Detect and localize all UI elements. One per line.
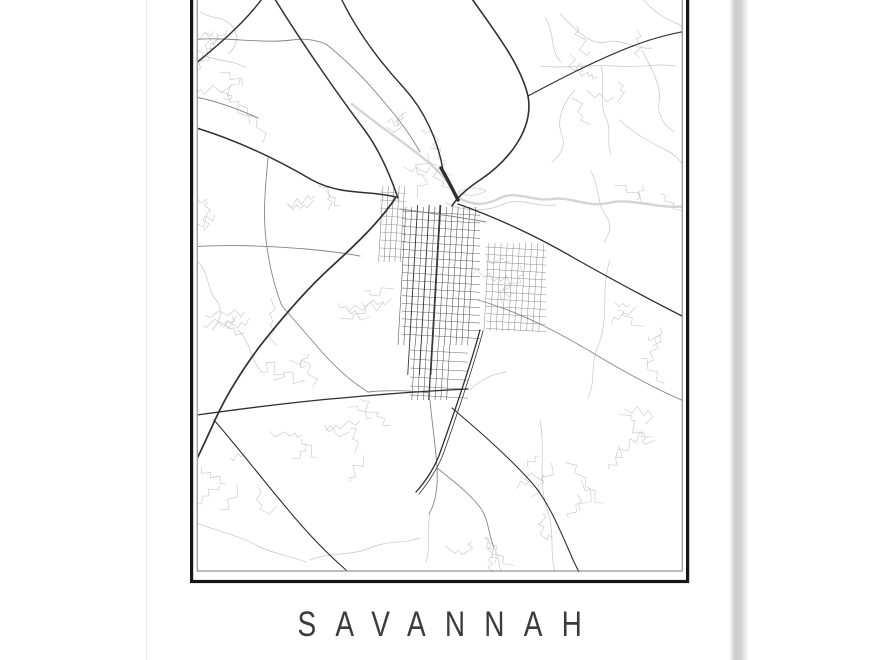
minor-road [470,372,506,390]
minor-road [286,195,315,207]
minor-road [608,446,622,470]
grid-street [486,269,546,272]
grid-street [486,291,546,294]
primary-road [528,31,686,96]
minor-road [206,56,246,68]
minor-road [270,431,302,438]
minor-road [484,538,497,562]
grid-street [380,216,406,217]
minor-road [616,431,640,457]
minor-road [231,452,246,461]
secondary-road [429,400,437,514]
primary-road [419,331,483,494]
minor-road [590,170,610,242]
map-roads [176,0,686,574]
minor-road [620,120,686,170]
minor-road [310,538,420,560]
minor-road [193,215,216,227]
minor-road [640,0,686,30]
grid-street [486,314,546,317]
minor-road [422,130,439,149]
minor-road [486,537,495,574]
grid-street [384,186,388,262]
primary-road [452,0,529,206]
grid-street [408,205,418,375]
minor-road [540,65,676,67]
primary-road [190,389,468,416]
grid-street [400,186,404,262]
minor-road [350,428,358,453]
grid-street [486,284,546,287]
minor-road [660,194,683,212]
secondary-road [326,44,420,152]
grid-street [484,243,489,331]
minor-road [615,303,630,308]
minor-road [348,302,384,312]
minor-road [219,91,249,124]
minor-road [220,484,238,510]
grid-street [502,243,507,331]
grid-street [380,248,406,249]
minor-road [538,513,552,540]
minor-road [190,520,306,562]
secondary-road [190,246,360,256]
map-water-layer [352,104,686,210]
minor-road [611,306,637,324]
grid-street [429,205,440,400]
grid-street [402,219,480,223]
minor-road [288,200,314,210]
minor-road [527,456,539,468]
grid-street [402,242,480,246]
minor-road [301,439,317,457]
secondary-road [190,39,326,44]
grid-street [410,350,468,353]
grid-street [380,192,406,193]
map-secondary-roads-layer [190,39,686,548]
grid-street [435,345,438,400]
primary-road [416,330,480,492]
poster: SAVANNAH [0,0,880,660]
minor-road [260,362,285,375]
minor-road [552,90,575,162]
minor-road [362,298,392,307]
primary-road [190,0,264,68]
minor-road [601,66,611,154]
minor-road [183,86,232,97]
minor-road [350,456,364,483]
minor-road [494,548,502,574]
minor-road [642,431,655,444]
minor-road [196,260,220,330]
grid-street [486,328,546,331]
map-minor-roads-layer [176,0,686,574]
poster-title-area: SAVANNAH [190,603,690,647]
minor-road [240,105,266,143]
primary-road [458,204,686,318]
map-primary-roads-layer [190,0,686,574]
primary-road [340,0,443,170]
minor-road [205,310,245,318]
minor-road [290,360,318,387]
grid-street [380,224,406,225]
minor-road [617,82,625,103]
minor-road [587,90,615,102]
minor-road [256,487,276,514]
grid-street [380,256,406,257]
primary-road [190,197,396,472]
grid-street [402,311,480,315]
secondary-road [437,468,494,548]
minor-road [364,288,394,296]
grid-street [402,257,480,261]
poster-title: SAVANNAH [279,603,602,647]
secondary-road [265,158,282,306]
grid-street [410,386,468,389]
minor-road [324,425,349,437]
grid-street [419,205,429,375]
water-path [352,104,686,207]
grid-street [441,345,444,400]
grid-street [496,243,501,331]
minor-road [567,494,582,518]
minor-road [201,467,226,484]
map-frame-inner [197,0,682,571]
grid-street [486,262,546,265]
minor-road [326,190,333,210]
grid-street [402,250,480,254]
grid-street [490,243,495,331]
minor-road [326,421,360,431]
minor-road [426,514,430,562]
grid-street [447,345,450,400]
grid-street [402,288,480,292]
minor-road [545,18,561,62]
grid-street [389,186,393,262]
poster-left-edge-line [146,0,147,660]
minor-road [471,270,507,282]
grid-street [410,359,468,362]
minor-road [238,330,262,372]
minor-road [641,359,664,384]
primary-road [214,420,346,570]
primary-road [190,126,396,197]
secondary-road [400,209,486,222]
grid-street [486,277,546,280]
minor-road [360,400,390,426]
grid-street [402,280,480,284]
grid-street [410,368,468,371]
minor-road [648,335,661,346]
grid-street [380,240,406,241]
minor-road [273,372,305,384]
grid-street [402,319,480,323]
minor-road [270,299,277,346]
minor-road [560,14,652,48]
minor-road [642,50,674,132]
poster-right-shadow [729,0,749,660]
minor-road [292,443,306,459]
minor-road [646,327,662,363]
minor-road [190,486,219,504]
minor-road [565,463,603,503]
minor-road [572,98,591,125]
minor-road [588,260,610,398]
minor-road [445,542,472,555]
map-frame-outer [192,0,688,582]
minor-road [618,415,653,438]
secondary-road [282,306,368,392]
